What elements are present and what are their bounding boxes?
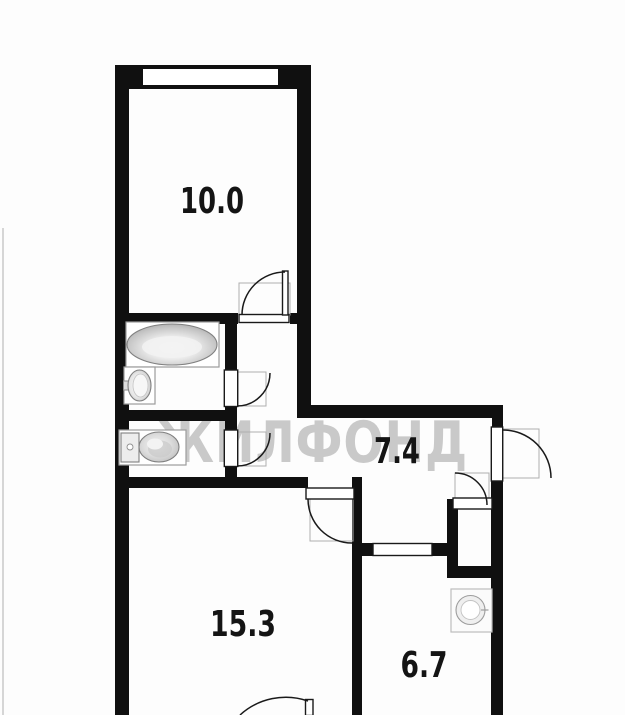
wall-segment: [297, 65, 311, 418]
wall-segment: [115, 477, 308, 488]
window-symbol: [143, 69, 278, 85]
wall-segment: [432, 543, 447, 556]
background: [0, 0, 625, 715]
wall-segment: [225, 313, 237, 371]
room-area-label: 10.0: [180, 181, 244, 222]
sink-icon: [124, 367, 156, 404]
door-leaf: [306, 700, 314, 715]
bathtub-highlight: [142, 336, 202, 358]
toilet-bowl-highlight: [147, 439, 163, 450]
floorplan-canvas: ЖИЛФОНД: [0, 0, 625, 715]
doorway-opening: [373, 544, 432, 556]
wall-segment: [297, 405, 503, 418]
crop-artifact-line: [2, 228, 4, 715]
door-leaf: [306, 488, 354, 499]
wall-segment: [491, 480, 503, 715]
toilet-cistern-button: [127, 444, 133, 450]
door-threshold: [239, 315, 289, 323]
washing-machine-icon: [451, 589, 492, 632]
wall-segment: [290, 313, 297, 324]
bathtub-icon: [126, 322, 219, 367]
sink-basin-inner: [133, 374, 148, 397]
door-leaf: [283, 271, 289, 315]
closet-wall-bottom: [447, 566, 502, 578]
wall-segment: [225, 406, 237, 431]
washing-machine-drum-inner: [461, 601, 480, 620]
wall-segment: [115, 410, 225, 421]
toilet-icon: [119, 430, 186, 465]
door-leaf: [224, 430, 237, 467]
room-area-label: 15.3: [210, 604, 276, 645]
room-area-label: 6.7: [401, 645, 448, 686]
floorplan-drawing: ЖИЛФОНД: [0, 0, 625, 715]
door-leaf: [224, 370, 237, 407]
wall-segment: [362, 543, 373, 556]
entrance-door-leaf: [491, 427, 502, 481]
room-area-label: 7.4: [374, 431, 420, 472]
